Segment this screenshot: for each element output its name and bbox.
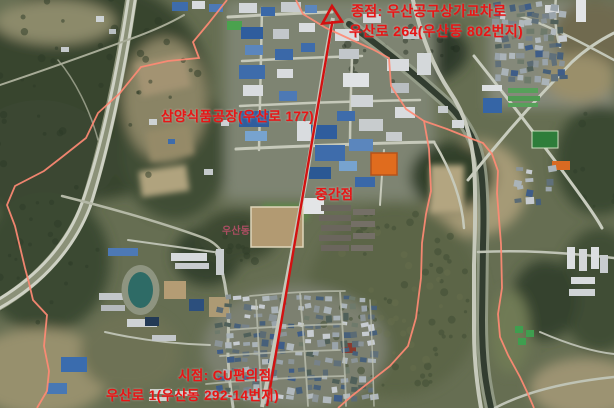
route-end-label-line2: 우산로 264(우산동 802번지): [349, 24, 523, 38]
route-start-label-line1: 시점: CU편의점: [178, 369, 271, 383]
route-midpoint-label: 중간점: [315, 188, 353, 202]
factory-label: 삼양식품공장(우산로 177): [161, 110, 314, 124]
satellite-map: [0, 0, 614, 408]
route-end-label-line1: 종점: 우산공구상가교차로: [351, 4, 506, 18]
map-viewport[interactable]: 종점: 우산공구상가교차로 우산로 264(우산동 802번지) 삼양식품공장(…: [0, 0, 614, 408]
orange-factory: [371, 153, 397, 175]
district-name-label: 우산동: [222, 227, 250, 237]
route-start-label-line2: 우산로 1(우산동 292-14번지): [106, 389, 279, 403]
stadium-infield: [128, 272, 153, 308]
sports-field-green: [532, 131, 558, 148]
